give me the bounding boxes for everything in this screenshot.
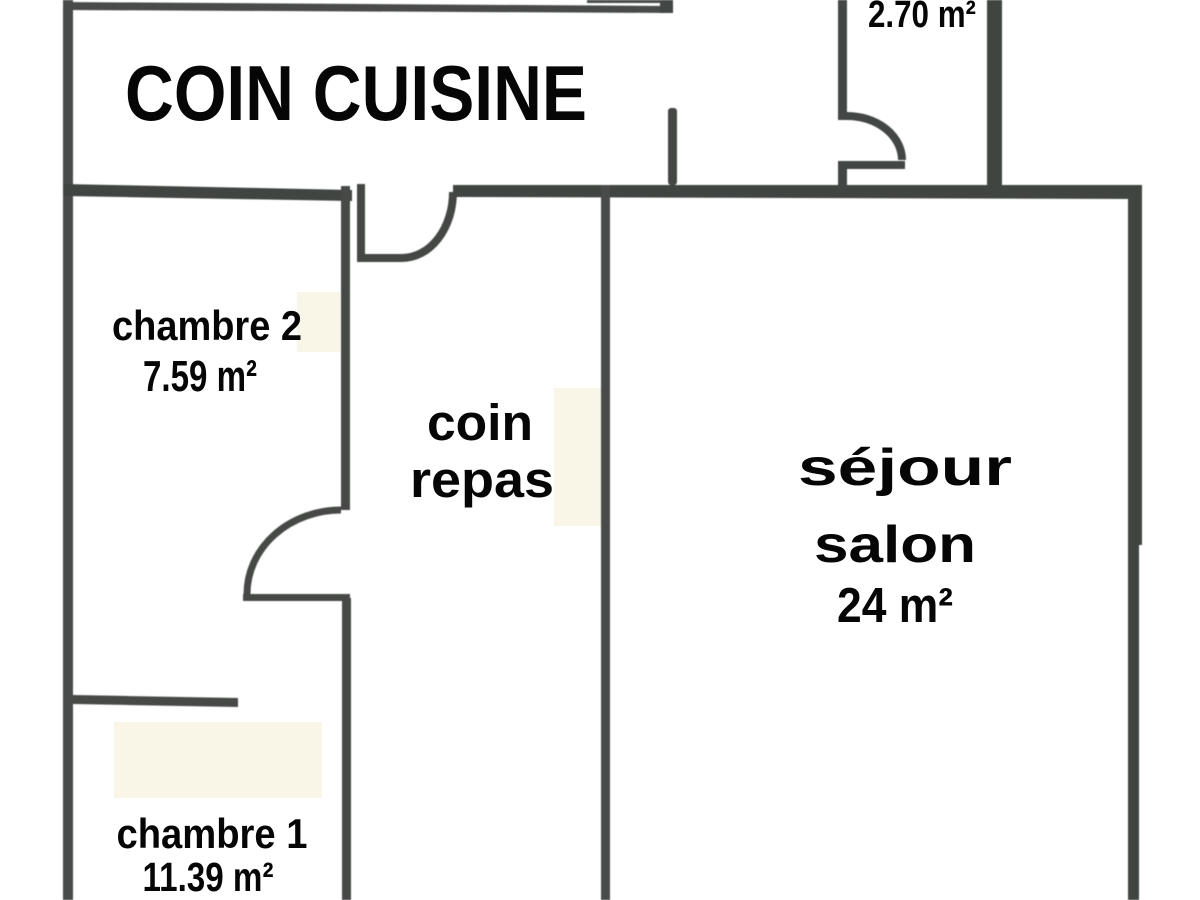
svg-text:repas: repas — [410, 451, 554, 508]
svg-text:2.70 m²: 2.70 m² — [868, 0, 976, 36]
svg-text:11.39 m²: 11.39 m² — [143, 854, 274, 900]
svg-text:chambre 2: chambre 2 — [112, 302, 302, 349]
svg-text:coin: coin — [427, 394, 533, 451]
svg-text:7.59 m²: 7.59 m² — [143, 352, 257, 401]
svg-text:salon: salon — [814, 516, 976, 574]
svg-text:chambre 1: chambre 1 — [117, 810, 308, 857]
svg-text:COIN CUISINE: COIN CUISINE — [125, 49, 587, 137]
svg-text:séjour: séjour — [798, 439, 1012, 497]
svg-text:24 m²: 24 m² — [837, 579, 953, 633]
